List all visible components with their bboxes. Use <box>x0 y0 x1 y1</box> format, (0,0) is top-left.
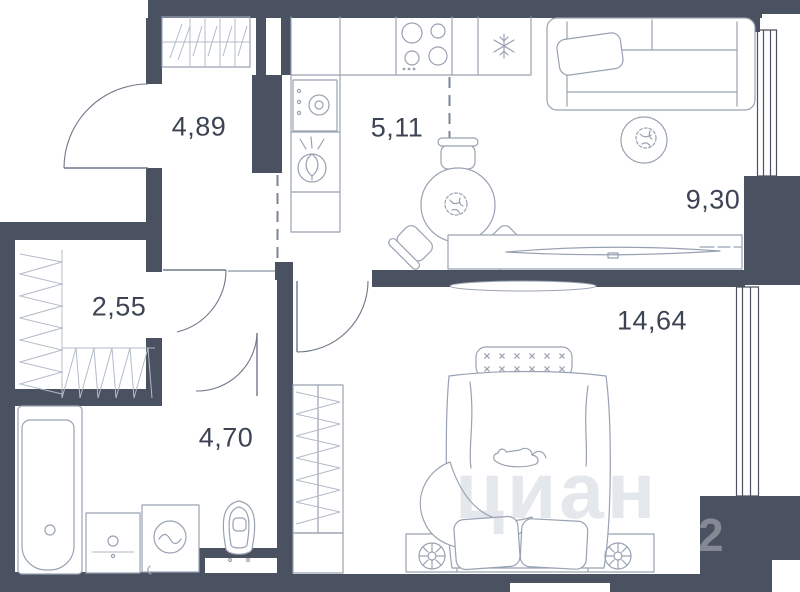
bedroom-wardrobe-icon <box>293 385 343 573</box>
stove-icon <box>402 23 447 70</box>
hall-closet-hatch <box>162 17 250 67</box>
room-label-hallway: 4,89 <box>172 112 227 143</box>
room-label-living-room: 9,30 <box>686 185 741 216</box>
rug-plant-icon <box>621 117 667 163</box>
room-label-bedroom: 14,64 <box>617 306 687 337</box>
room-label-wardrobe: 2,55 <box>92 292 147 323</box>
wardrobe-hatch-icon <box>20 250 155 398</box>
washing-machine-icon <box>293 80 337 131</box>
bedroom-door <box>297 281 368 352</box>
wardrobe-door <box>163 270 275 332</box>
fridge-snowflake-icon <box>494 34 514 58</box>
room-label-bathroom: 4,70 <box>199 423 254 454</box>
sofa-icon <box>547 18 755 110</box>
bedroom-window <box>736 287 759 496</box>
bathtub-icon <box>18 406 82 574</box>
living-room-window <box>757 30 777 176</box>
bed-icon <box>420 347 610 570</box>
washer-icon <box>142 505 199 574</box>
tv-console-icon <box>448 235 742 269</box>
bathroom-door <box>196 333 257 396</box>
wall-niche-lens <box>450 281 596 291</box>
kitchen-sink-icon <box>298 137 326 182</box>
vanity-icon <box>86 513 140 573</box>
floor-plan: 4,89 5,11 9,30 2,55 4,70 14,64 циан 2 <box>0 0 800 592</box>
room-label-kitchen: 5,11 <box>371 113 424 144</box>
entry-door <box>64 84 148 168</box>
toilet-icon <box>223 501 254 562</box>
